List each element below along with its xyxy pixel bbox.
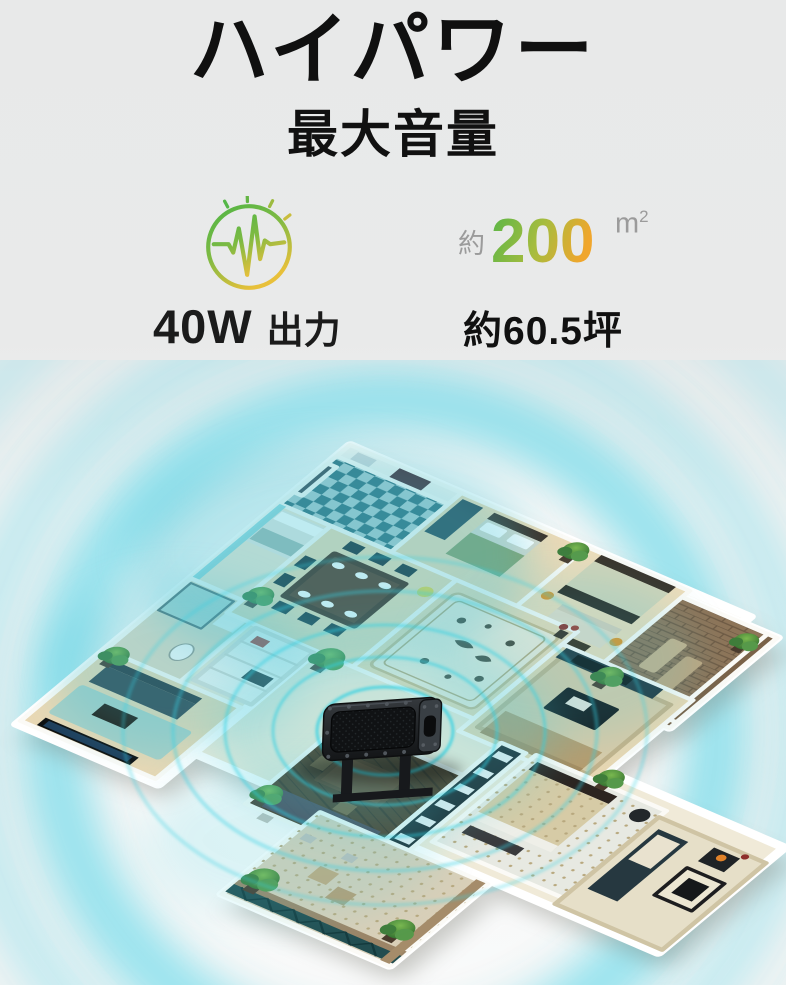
pulse-waveform bbox=[214, 216, 284, 274]
power-label: 出力 bbox=[267, 300, 341, 354]
feature-row: 40W 出力 約 200 m2 約60.5坪 bbox=[0, 0, 786, 360]
speaker-shadow bbox=[299, 756, 463, 784]
coverage-area-alt: 約60.5坪 bbox=[463, 300, 623, 356]
floorplan-illustration bbox=[0, 360, 786, 985]
waveform-pulse-icon bbox=[198, 196, 300, 298]
speaker-strap-mount bbox=[418, 699, 442, 753]
coverage-number: 200 bbox=[489, 205, 607, 275]
coverage-value: 200 bbox=[491, 207, 594, 275]
product-banner: ハイパワー 最大音量 40W 出力 bbox=[0, 0, 786, 985]
coverage-approx-prefix: 約 bbox=[458, 222, 485, 261]
speaker-grille bbox=[330, 707, 415, 753]
coverage-spec: 約 200 m2 bbox=[458, 205, 649, 275]
coverage-unit: m2 bbox=[615, 207, 649, 241]
power-spec: 40W 出力 bbox=[153, 299, 341, 354]
power-value: 40W bbox=[153, 299, 253, 354]
